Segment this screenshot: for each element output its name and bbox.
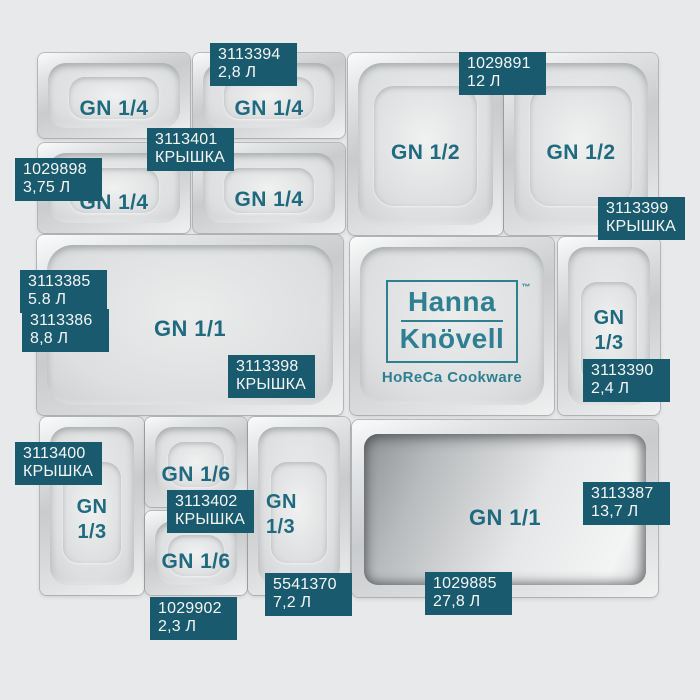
tag-1029891: 1029891 12 Л	[459, 52, 546, 95]
pan-size-label: GN 1/4	[38, 53, 190, 138]
tag-info: КРЫШКА	[175, 511, 245, 529]
tag-3113399: 3113399 КРЫШКА	[598, 197, 685, 240]
tag-sku: 3113400	[23, 445, 93, 463]
tag-sku: 3113386	[30, 312, 100, 330]
tag-3113401: 3113401 КРЫШКА	[147, 128, 234, 171]
trademark-symbol: ™	[521, 282, 530, 292]
tag-info: КРЫШКА	[23, 463, 93, 481]
tag-sku: 3113394	[218, 46, 288, 64]
pan-size-label: GN 1/3	[248, 417, 350, 595]
tag-info: 3,75 Л	[23, 179, 93, 197]
tag-sku: 3113398	[236, 358, 306, 376]
product-collage: GN 1/4 GN 1/4 GN 1/4 GN 1/4 GN 1/2 GN 1/…	[0, 0, 700, 700]
tag-3113400: 3113400 КРЫШКА	[15, 442, 102, 485]
tag-info: КРЫШКА	[155, 149, 225, 167]
tag-sku: 3113390	[591, 362, 661, 380]
pan-gn13-bottom-middle: GN 1/3	[248, 417, 350, 595]
brand-tagline: HoReCa Cookware	[382, 369, 522, 386]
tag-sku: 3113385	[28, 273, 98, 291]
tag-info: 5.8 Л	[28, 291, 98, 309]
tag-info: КРЫШКА	[236, 376, 306, 394]
pan-size-top: GN	[594, 306, 625, 331]
tag-sku: 3113387	[591, 485, 661, 503]
tag-info: 13,7 Л	[591, 503, 661, 521]
pan-size-bottom: 1/3	[594, 331, 623, 356]
tag-5541370: 5541370 7,2 Л	[265, 573, 352, 616]
tag-info: 8,8 Л	[30, 330, 100, 348]
tag-sku: 1029891	[467, 55, 537, 73]
tag-sku: 3113399	[606, 200, 676, 218]
brand-name-line1: Hanna	[400, 287, 505, 317]
tag-sku: 1029902	[158, 600, 228, 618]
tag-1029898: 1029898 3,75 Л	[15, 158, 102, 201]
tag-3113387: 3113387 13,7 Л	[583, 482, 670, 525]
tag-info: 2,4 Л	[591, 380, 661, 398]
tag-sku: 1029898	[23, 161, 93, 179]
tag-info: 12 Л	[467, 73, 537, 91]
brand-logo-box: Hanna Knövell ™	[386, 280, 519, 362]
pan-branded: Hanna Knövell ™ HoReCa Cookware	[350, 237, 554, 415]
pan-size-top: GN	[77, 495, 108, 520]
tag-1029902: 1029902 2,3 Л	[150, 597, 237, 640]
pan-size-top: GN	[266, 490, 297, 515]
tag-3113385: 3113385 5.8 Л	[20, 270, 107, 313]
pan-size-bottom: 1/3	[77, 520, 106, 545]
tag-sku: 3113401	[155, 131, 225, 149]
brand-divider	[401, 320, 504, 322]
tag-sku: 5541370	[273, 576, 343, 594]
tag-3113390: 3113390 2,4 Л	[583, 359, 670, 402]
tag-sku: 3113402	[175, 493, 245, 511]
brand-name-line2: Knövell	[400, 324, 505, 354]
tag-sku: 1029885	[433, 575, 503, 593]
tag-info: 7,2 Л	[273, 594, 343, 612]
tag-3113386: 3113386 8,8 Л	[22, 309, 109, 352]
pan-size-bottom: 1/3	[266, 515, 295, 540]
tag-3113402: 3113402 КРЫШКА	[167, 490, 254, 533]
pan-gn14-top-left: GN 1/4	[38, 53, 190, 138]
tag-1029885: 1029885 27,8 Л	[425, 572, 512, 615]
tag-info: 2,3 Л	[158, 618, 228, 636]
tag-3113394: 3113394 2,8 Л	[210, 43, 297, 86]
tag-info: 27,8 Л	[433, 593, 503, 611]
tag-info: 2,8 Л	[218, 64, 288, 82]
tag-info: КРЫШКА	[606, 218, 676, 236]
brand-logo: Hanna Knövell ™ HoReCa Cookware	[350, 237, 554, 415]
tag-3113398: 3113398 КРЫШКА	[228, 355, 315, 398]
